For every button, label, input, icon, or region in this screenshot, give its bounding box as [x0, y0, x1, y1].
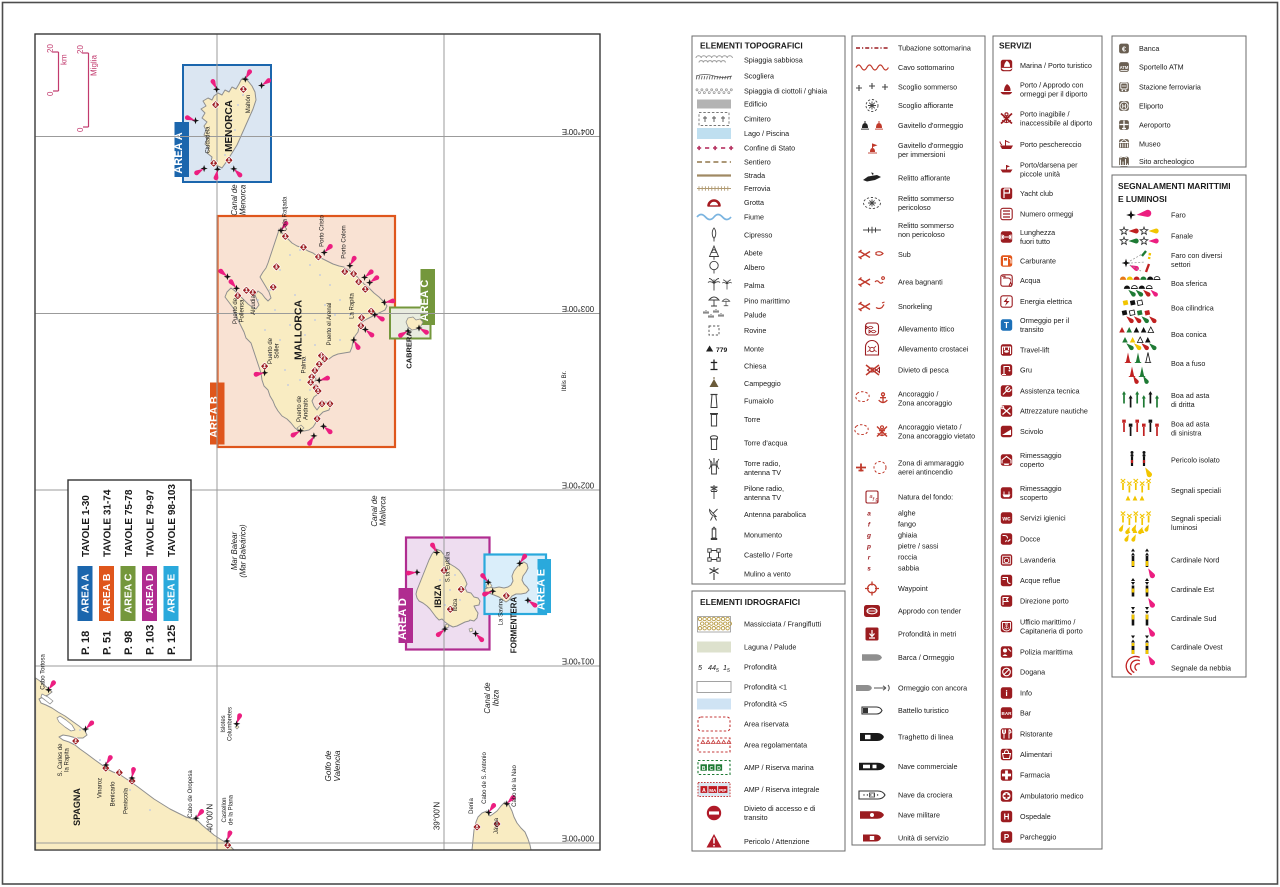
svg-text:5: 5	[727, 668, 730, 674]
svg-text:Snorkeling: Snorkeling	[898, 302, 932, 311]
svg-text:H: H	[1004, 812, 1010, 821]
svg-text:Sub: Sub	[898, 250, 911, 259]
svg-text:AREA E: AREA E	[535, 569, 547, 610]
svg-text:Profondità: Profondità	[744, 663, 777, 672]
svg-text:Tubazione sottomarina: Tubazione sottomarina	[898, 44, 971, 53]
svg-text:Torre d'acqua: Torre d'acqua	[744, 439, 787, 448]
svg-text:pietre / sassi: pietre / sassi	[898, 542, 939, 551]
svg-text:Pericolo isolato: Pericolo isolato	[1171, 456, 1220, 465]
svg-text:Segnale da nebbia: Segnale da nebbia	[1171, 664, 1231, 673]
svg-text:Castellonde la Plana: Castellonde la Plana	[222, 794, 235, 825]
svg-text:sabbia: sabbia	[898, 564, 919, 573]
svg-text:Allevamento ittico: Allevamento ittico	[898, 325, 954, 334]
svg-text:Ufficio marittimo /Capitaneria: Ufficio marittimo /Capitaneria di porto	[1020, 618, 1083, 636]
svg-text:A: A	[702, 788, 706, 794]
svg-text:Canal deMallorca: Canal deMallorca	[370, 495, 388, 527]
svg-text:Abete: Abete	[744, 249, 763, 258]
svg-text:Spiaggia di ciottoli / ghiaia: Spiaggia di ciottoli / ghiaia	[744, 87, 827, 96]
svg-text:Porto / Approdo conormeggi per: Porto / Approdo conormeggi per il diport…	[1020, 81, 1088, 99]
svg-text:Servizi igienici: Servizi igienici	[1020, 514, 1066, 523]
svg-text:Lavanderia: Lavanderia	[1020, 556, 1056, 565]
svg-text:f g: f g	[873, 497, 880, 503]
svg-text:Segnali speciali: Segnali speciali	[1171, 486, 1221, 495]
svg-text:i: i	[1005, 688, 1007, 698]
svg-text:Cardinale Nord: Cardinale Nord	[1171, 556, 1219, 565]
svg-text:Rovine: Rovine	[744, 326, 766, 335]
svg-text:TAVOLE 31-74: TAVOLE 31-74	[103, 489, 114, 557]
svg-text:Faro: Faro	[1171, 211, 1186, 220]
svg-text:Traghetto di linea: Traghetto di linea	[898, 733, 953, 742]
svg-text:Museo: Museo	[1139, 140, 1161, 149]
svg-text:Pino marittimo: Pino marittimo	[744, 297, 790, 306]
svg-text:Grotta: Grotta	[744, 198, 764, 207]
svg-text:Benicarlo: Benicarlo	[111, 781, 117, 807]
svg-text:€: €	[1122, 44, 1126, 53]
svg-text:Ferrovia: Ferrovia	[744, 184, 770, 193]
svg-text:TAVOLE 79-97: TAVOLE 79-97	[146, 489, 157, 557]
svg-text:Assistenza tecnica: Assistenza tecnica	[1020, 387, 1080, 396]
svg-text:P: P	[1004, 833, 1010, 842]
svg-text:PIP: PIP	[719, 788, 726, 793]
svg-text:FORMENTERA: FORMENTERA	[510, 597, 519, 654]
svg-text:P. 103: P. 103	[145, 625, 157, 655]
svg-text:Sentiero: Sentiero	[744, 158, 771, 167]
svg-text:001°00'E: 001°00'E	[562, 657, 594, 666]
svg-text:Cardinale Sud: Cardinale Sud	[1171, 614, 1217, 623]
svg-text:Ambulatorio medico: Ambulatorio medico	[1020, 792, 1084, 801]
svg-text:Ibiza: Ibiza	[453, 598, 459, 611]
svg-text:Aeroporto: Aeroporto	[1139, 121, 1171, 130]
svg-text:SPAGNA: SPAGNA	[72, 788, 82, 826]
svg-text:MALLORCA: MALLORCA	[293, 300, 305, 360]
svg-text:Monte: Monte	[744, 345, 764, 354]
svg-text:Mulino a vento: Mulino a vento	[744, 570, 791, 579]
svg-text:Denia: Denia	[469, 798, 475, 814]
svg-text:Natura del fondo:: Natura del fondo:	[898, 493, 953, 502]
svg-text:AREA E: AREA E	[166, 574, 178, 613]
svg-text:S.ta Eulalia: S.ta Eulalia	[446, 551, 452, 582]
svg-text:Puerto deAndraitx: Puerto deAndraitx	[297, 395, 310, 422]
svg-text:Cabo Tortosa: Cabo Tortosa	[41, 654, 47, 690]
svg-text:H: H	[1122, 104, 1126, 110]
svg-text:Canal deMenorca: Canal deMenorca	[230, 184, 248, 216]
svg-text:Allevamento crostacei: Allevamento crostacei	[898, 345, 969, 354]
svg-text:Chiesa: Chiesa	[744, 362, 766, 371]
svg-text:TAVOLE 75-78: TAVOLE 75-78	[124, 489, 135, 557]
svg-text:Torre: Torre	[744, 415, 760, 424]
svg-text:Area bagnanti: Area bagnanti	[898, 278, 943, 287]
svg-text:g: g	[866, 533, 871, 540]
svg-text:Lunghezzafuori tutto: Lunghezzafuori tutto	[1020, 228, 1055, 246]
svg-text:Area riservata: Area riservata	[744, 720, 789, 729]
svg-text:Cabo de S. Antonio: Cabo de S. Antonio	[482, 751, 488, 803]
svg-text:Attrezzature nautiche: Attrezzature nautiche	[1020, 407, 1088, 416]
svg-text:P. 125: P. 125	[166, 625, 178, 655]
svg-text:Cabo de la Nao: Cabo de la Nao	[512, 764, 518, 806]
svg-text:Waypoint: Waypoint	[898, 584, 928, 593]
svg-text:Polizia marittima: Polizia marittima	[1020, 648, 1073, 657]
svg-text:P. 18: P. 18	[80, 631, 92, 655]
svg-text:Ristorante: Ristorante	[1020, 730, 1053, 739]
svg-text:Massicciata / Frangiflutti: Massicciata / Frangiflutti	[744, 620, 821, 629]
svg-text:Boa conica: Boa conica	[1171, 330, 1207, 339]
svg-text:Porto Cristo: Porto Cristo	[320, 215, 326, 247]
svg-text:Divieto di pesca: Divieto di pesca	[898, 366, 949, 375]
svg-text:Docce: Docce	[1020, 535, 1040, 544]
svg-text:Cardinale Est: Cardinale Est	[1171, 585, 1214, 594]
svg-text:Pilone radio,antenna TV: Pilone radio,antenna TV	[744, 484, 784, 502]
svg-text:Vinaroz: Vinaroz	[98, 778, 104, 798]
svg-text:La Savina: La Savina	[499, 598, 505, 625]
svg-text:km: km	[60, 54, 69, 65]
svg-text:Info: Info	[1020, 689, 1032, 698]
svg-text:Fiume: Fiume	[744, 213, 764, 222]
svg-text:Profondità in metri: Profondità in metri	[898, 630, 957, 639]
svg-text:CABRERA: CABRERA	[405, 331, 414, 369]
svg-text:39°00'N: 39°00'N	[433, 802, 442, 831]
svg-text:0: 0	[76, 127, 85, 132]
svg-text:20: 20	[46, 44, 55, 53]
svg-text:P. 98: P. 98	[123, 631, 135, 655]
svg-text:alghe: alghe	[898, 509, 916, 518]
svg-text:TAVOLE 1-30: TAVOLE 1-30	[81, 495, 92, 557]
svg-text:Scoglio affiorante: Scoglio affiorante	[898, 101, 953, 110]
svg-text:Relitto affiorante: Relitto affiorante	[898, 174, 950, 183]
svg-text:ELEMENTI IDROGRAFICI: ELEMENTI IDROGRAFICI	[700, 597, 800, 607]
svg-text:Parcheggio: Parcheggio	[1020, 833, 1056, 842]
svg-text:Ciudadela: Ciudadela	[206, 126, 212, 154]
svg-text:Scivolo: Scivolo	[1020, 427, 1043, 436]
svg-text:MENORCA: MENORCA	[224, 100, 235, 152]
svg-text:Cabo de Oropesa: Cabo de Oropesa	[188, 770, 194, 818]
svg-text:Albero: Albero	[744, 263, 765, 272]
svg-text:AMP / Riserva integrale: AMP / Riserva integrale	[744, 785, 819, 794]
svg-text:Marina / Porto turistico: Marina / Porto turistico	[1020, 61, 1092, 70]
svg-text:Boa sferica: Boa sferica	[1171, 279, 1207, 288]
svg-text:SERVIZI: SERVIZI	[999, 41, 1031, 51]
svg-text:C: C	[709, 766, 713, 772]
svg-text:Porto peschereccio: Porto peschereccio	[1020, 140, 1082, 149]
svg-text:0: 0	[46, 91, 55, 96]
svg-text:Porto Colom: Porto Colom	[342, 225, 348, 258]
svg-text:Cimitero: Cimitero	[744, 115, 771, 124]
svg-text:AREA C: AREA C	[123, 573, 135, 613]
svg-text:AREA D: AREA D	[397, 598, 409, 640]
svg-text:Boa a fuso: Boa a fuso	[1171, 359, 1205, 368]
svg-text:Bar: Bar	[1020, 709, 1032, 718]
svg-text:wc: wc	[1001, 515, 1011, 522]
svg-text:Acque reflue: Acque reflue	[1020, 576, 1060, 585]
svg-text:Banca: Banca	[1139, 44, 1159, 53]
svg-text:AREA A: AREA A	[173, 132, 185, 173]
svg-text:Strada: Strada	[744, 171, 765, 180]
svg-text:Gavitello d'ormeggio: Gavitello d'ormeggio	[898, 121, 963, 130]
svg-text:Eliporto: Eliporto	[1139, 102, 1163, 111]
svg-text:Carburante: Carburante	[1020, 257, 1056, 266]
svg-text:D: D	[717, 766, 721, 772]
svg-text:Direzione porto: Direzione porto	[1020, 597, 1069, 606]
svg-text:44: 44	[708, 663, 716, 672]
svg-text:Jávea: Jávea	[494, 817, 500, 834]
svg-text:AREA A: AREA A	[80, 573, 92, 613]
svg-text:roccia: roccia	[898, 553, 917, 562]
svg-text:Confine di Stato: Confine di Stato	[744, 144, 795, 153]
svg-text:Battello turistico: Battello turistico	[898, 706, 949, 715]
svg-text:Travel-lift: Travel-lift	[1020, 346, 1049, 355]
svg-text:Area regolamentata: Area regolamentata	[744, 741, 807, 750]
svg-text:Cavo sottomarino: Cavo sottomarino	[898, 63, 954, 72]
svg-text:P. 51: P. 51	[102, 631, 114, 655]
svg-text:Scoglio sommerso: Scoglio sommerso	[898, 83, 957, 92]
svg-text:Numero ormeggi: Numero ormeggi	[1020, 210, 1074, 219]
svg-text:Yacht club: Yacht club	[1020, 189, 1053, 198]
svg-text:Fanale: Fanale	[1171, 232, 1193, 241]
svg-text:AMP / Riserva marina: AMP / Riserva marina	[744, 763, 814, 772]
svg-text:Dogana: Dogana	[1020, 668, 1045, 677]
svg-text:AREA C: AREA C	[419, 280, 431, 322]
svg-text:Cipresso: Cipresso	[744, 231, 772, 240]
svg-text:Nave commerciale: Nave commerciale	[898, 762, 958, 771]
svg-text:Campeggio: Campeggio	[744, 379, 781, 388]
svg-text:Mar Balear(Mar Baleárico): Mar Balear(Mar Baleárico)	[230, 524, 248, 578]
svg-text:Puerto el Arenal: Puerto el Arenal	[327, 303, 333, 346]
svg-text:Antenna parabolica: Antenna parabolica	[744, 510, 806, 519]
svg-text:Pericolo / Attenzione: Pericolo / Attenzione	[744, 837, 810, 846]
svg-text:Puerto dePollensa: Puerto dePollensa	[233, 297, 246, 324]
svg-text:Profondità <1: Profondità <1	[744, 683, 787, 692]
svg-text:Castello / Forte: Castello / Forte	[744, 551, 793, 560]
svg-text:Spiaggia sabbiosa: Spiaggia sabbiosa	[744, 56, 803, 65]
svg-text:Palude: Palude	[744, 311, 766, 320]
svg-text:Peniscola: Peniscola	[124, 787, 130, 814]
svg-text:Boa cilindrica: Boa cilindrica	[1171, 304, 1214, 313]
svg-text:B: B	[702, 766, 706, 772]
svg-text:Alcudia: Alcudia	[251, 295, 257, 315]
svg-text:20: 20	[76, 45, 85, 54]
svg-text:La Rapita: La Rapita	[350, 292, 356, 318]
svg-text:000°00'E: 000°00'E	[562, 834, 594, 843]
svg-text:Barca / Ormeggio: Barca / Ormeggio	[898, 653, 954, 662]
svg-text:004°00'E: 004°00'E	[562, 127, 594, 136]
svg-text:Profondità <5: Profondità <5	[744, 700, 787, 709]
svg-text:Lago / Piscina: Lago / Piscina	[744, 129, 789, 138]
svg-text:779: 779	[716, 347, 728, 354]
svg-text:Palma: Palma	[744, 281, 764, 290]
svg-text:MA: MA	[709, 788, 717, 793]
svg-text:Cala Ratjada: Cala Ratjada	[283, 196, 289, 231]
svg-text:p: p	[866, 544, 871, 551]
svg-text:Approdo con tender: Approdo con tender	[898, 607, 962, 616]
svg-text:Farmacia: Farmacia	[1020, 771, 1050, 780]
svg-text:5: 5	[716, 668, 719, 674]
svg-text:AREA B: AREA B	[101, 573, 113, 613]
svg-text:Monumento: Monumento	[744, 531, 782, 540]
svg-text:Miglia: Miglia	[90, 55, 99, 76]
svg-text:Stazione ferroviaria: Stazione ferroviaria	[1139, 83, 1201, 92]
svg-text:Unità di servizio: Unità di servizio	[898, 834, 949, 843]
svg-text:fango: fango	[898, 520, 916, 529]
svg-text:a: a	[867, 511, 871, 518]
svg-text:Cardinale Ovest: Cardinale Ovest	[1171, 643, 1223, 652]
svg-text:Golfo deValencia: Golfo deValencia	[324, 750, 342, 782]
svg-text:TAVOLE 98-103: TAVOLE 98-103	[167, 484, 178, 557]
svg-text:Gru: Gru	[1020, 366, 1032, 375]
svg-text:ghiaia: ghiaia	[898, 531, 917, 540]
svg-text:Mahón: Mahón	[246, 95, 252, 113]
svg-text:s: s	[867, 566, 871, 573]
svg-text:Energia elettrica: Energia elettrica	[1020, 297, 1072, 306]
svg-text:T: T	[1004, 321, 1009, 330]
svg-text:Edificio: Edificio	[744, 100, 767, 109]
svg-text:Laguna / Palude: Laguna / Palude	[744, 643, 796, 652]
svg-text:Nave militare: Nave militare	[898, 811, 940, 820]
svg-text:003°00'E: 003°00'E	[562, 304, 594, 313]
svg-text:ATM: ATM	[1120, 65, 1129, 70]
svg-text:Ospedale: Ospedale	[1020, 812, 1051, 821]
svg-text:Alimentari: Alimentari	[1020, 750, 1052, 759]
svg-text:Palma: Palma	[301, 356, 307, 374]
svg-text:Iblis Br.: Iblis Br.	[561, 371, 568, 392]
svg-text:AREA D: AREA D	[144, 573, 156, 613]
svg-text:40°00'N: 40°00'N	[206, 804, 215, 833]
svg-text:Torre radio,antenna TV: Torre radio,antenna TV	[744, 459, 781, 477]
svg-text:Fumaiolo: Fumaiolo	[744, 397, 774, 406]
svg-text:AREA B: AREA B	[208, 396, 220, 438]
svg-text:Sportello ATM: Sportello ATM	[1139, 63, 1184, 72]
svg-text:Sito archeologico: Sito archeologico	[1139, 157, 1194, 166]
svg-text:ELEMENTI TOPOGRAFICI: ELEMENTI TOPOGRAFICI	[700, 41, 803, 51]
svg-text:Acqua: Acqua	[1020, 276, 1040, 285]
svg-text:Ormeggio con ancora: Ormeggio con ancora	[898, 684, 967, 693]
svg-text:Scogliera: Scogliera	[744, 72, 774, 81]
svg-text:IBIZA: IBIZA	[433, 584, 443, 608]
svg-text:Nave da crociera: Nave da crociera	[898, 791, 952, 800]
svg-text:BAR: BAR	[1002, 711, 1013, 716]
svg-text:002°00'E: 002°00'E	[562, 481, 594, 490]
